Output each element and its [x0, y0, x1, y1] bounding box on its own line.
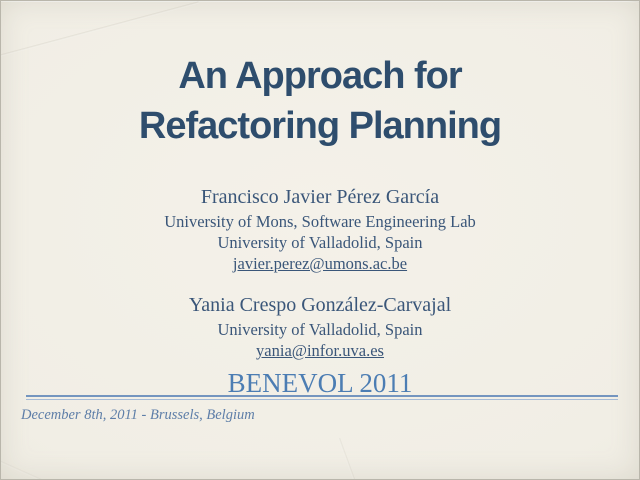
paper-crease-bottom-left: [0, 453, 66, 480]
author-1-name: Francisco Javier Pérez García: [1, 185, 639, 209]
author-2-affiliation-1: University of Valladolid, Spain: [1, 319, 639, 340]
slide-title: An Approach for Refactoring Planning: [1, 51, 639, 151]
footer-divider-rule: [26, 395, 618, 400]
author-2-email-line: yania@infor.uva.es: [1, 340, 639, 361]
author-2-email-link[interactable]: yania@infor.uva.es: [256, 341, 384, 360]
author-1-email-line: javier.perez@umons.ac.be: [1, 253, 639, 274]
presentation-slide: An Approach for Refactoring Planning Fra…: [0, 0, 640, 480]
author-block-2: Yania Crespo González-Carvajal Universit…: [1, 293, 639, 361]
author-1-affiliation-1: University of Mons, Software Engineering…: [1, 211, 639, 232]
paper-crease-bottom-mid: [338, 438, 359, 480]
slide-title-line-2: Refactoring Planning: [1, 101, 639, 151]
author-1-email-link[interactable]: javier.perez@umons.ac.be: [233, 254, 407, 273]
footer-date: December 8th, 2011 - Brussels, Belgium: [21, 406, 255, 425]
author-1-affiliation-2: University of Valladolid, Spain: [1, 232, 639, 253]
paper-crease-top-right: [416, 0, 640, 7]
conference-name: BENEVOL 2011: [1, 369, 639, 397]
author-2-name: Yania Crespo González-Carvajal: [1, 293, 639, 317]
slide-title-line-1: An Approach for: [1, 51, 639, 101]
author-block-1: Francisco Javier Pérez García University…: [1, 185, 639, 274]
